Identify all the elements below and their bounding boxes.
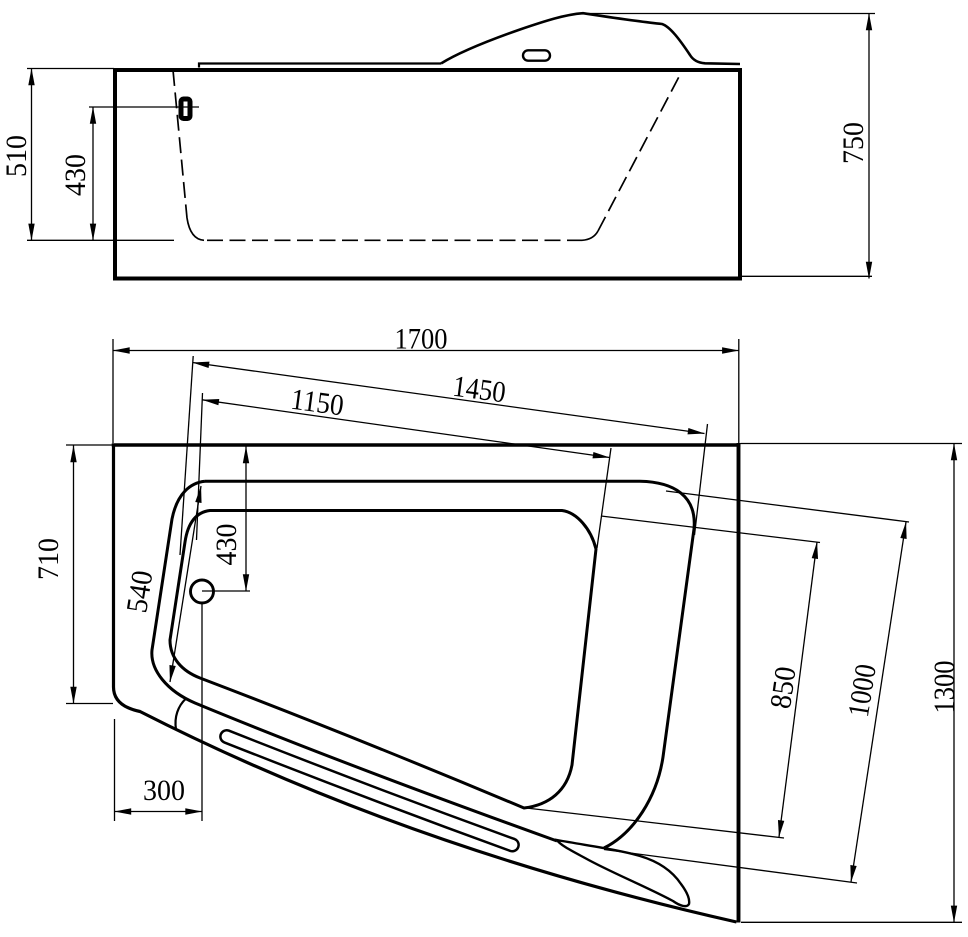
svg-text:430: 430 [59, 154, 92, 196]
svg-text:300: 300 [143, 774, 185, 807]
svg-text:540: 540 [120, 568, 159, 615]
svg-text:1150: 1150 [289, 383, 346, 423]
svg-text:750: 750 [837, 122, 870, 164]
svg-text:850: 850 [764, 665, 803, 711]
svg-text:1450: 1450 [451, 370, 508, 410]
svg-text:1300: 1300 [928, 661, 961, 714]
svg-text:710: 710 [32, 538, 65, 580]
svg-text:1700: 1700 [395, 323, 448, 356]
svg-text:510: 510 [0, 135, 33, 177]
svg-text:430: 430 [210, 524, 243, 566]
